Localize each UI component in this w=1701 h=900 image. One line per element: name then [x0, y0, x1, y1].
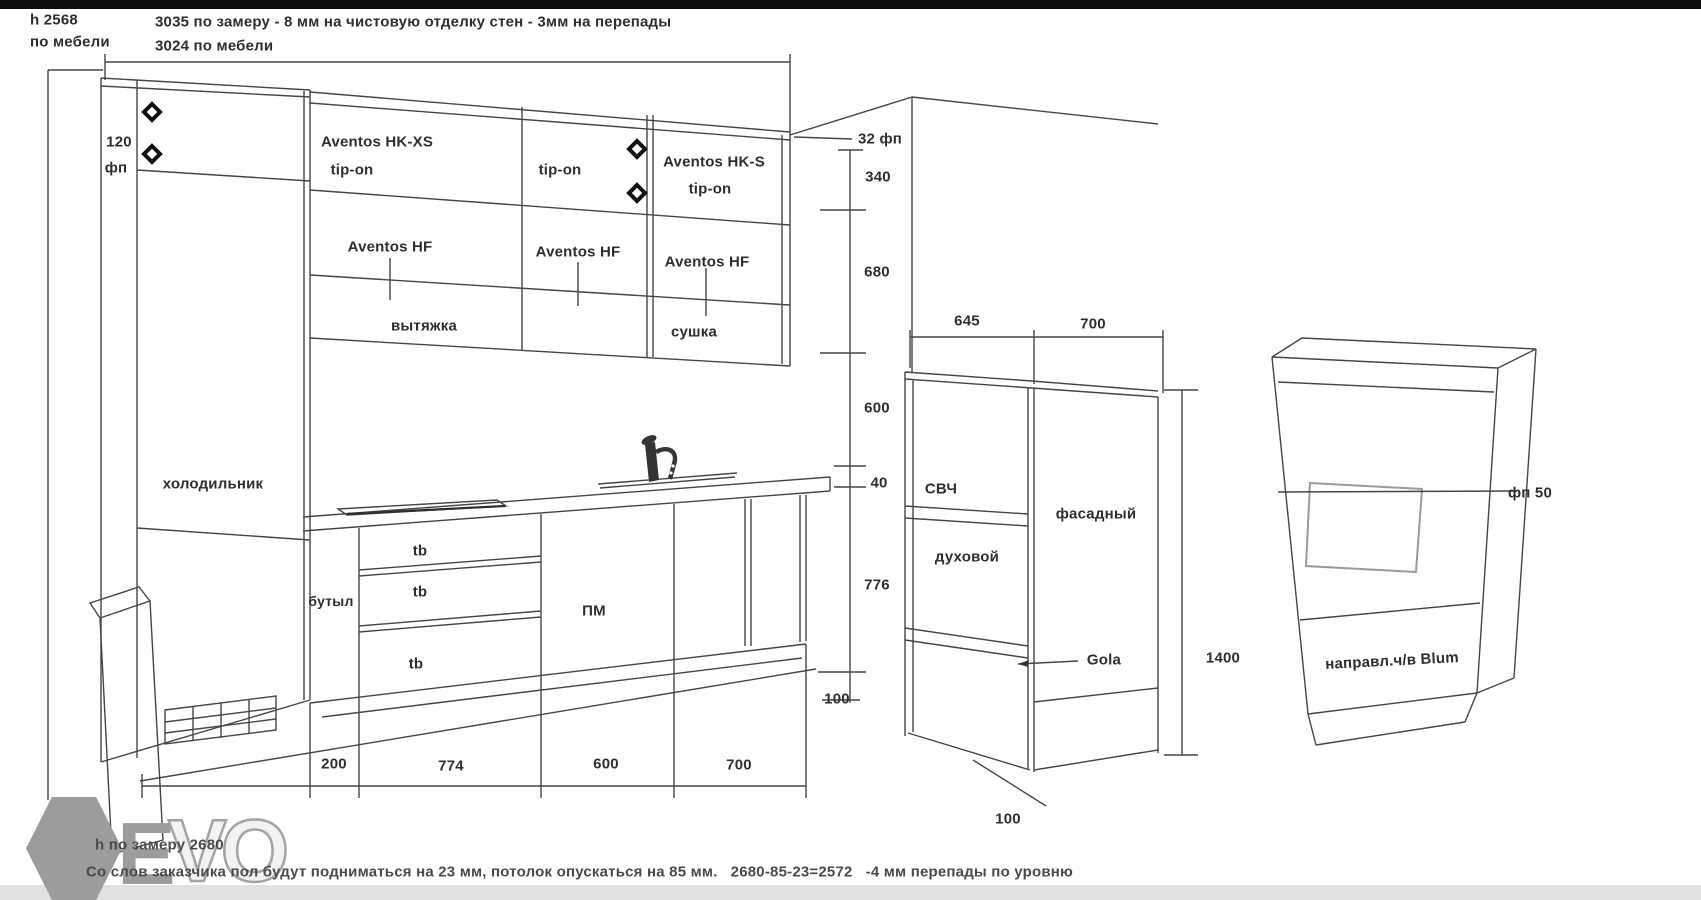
side-filler-label: фп 50	[1508, 485, 1552, 502]
fridge-column-outline	[101, 78, 310, 762]
dim-top-filler: 32 фп	[858, 131, 902, 148]
push-latch-diamond-icon	[629, 141, 645, 201]
top-filler-leader-line	[794, 137, 852, 139]
top-width-dimension-lines	[105, 54, 790, 132]
plinth-leader-line	[973, 760, 1046, 806]
tall-cabinet-outline	[905, 372, 1158, 806]
upper-sec1-tipon-label: tip-on	[331, 162, 374, 179]
dishwasher-label: ПМ	[582, 603, 606, 620]
tall-cabinet-top-dimension-lines	[910, 330, 1163, 393]
tall-cabinet-front-height-dimension	[1164, 390, 1198, 755]
base-cabinets-outline	[140, 495, 816, 781]
vent-grille-icon	[165, 696, 276, 744]
measure-note-2: 3024 по мебели	[155, 38, 273, 55]
kitchen-drawing-page: h 2568 по мебели 3035 по замеру - 8 мм н…	[0, 0, 1701, 900]
hood-label: вытяжка	[391, 318, 457, 335]
tall-depth-645: 645	[954, 313, 980, 330]
elevation-line-drawing	[0, 0, 1701, 900]
dim-toe-kick-100: 100	[824, 691, 850, 708]
push-latch-diamond-icon	[144, 104, 160, 162]
evo-logo-letter-e: E	[117, 815, 176, 893]
dim-600-bottom: 600	[593, 756, 619, 773]
appliance-niche-outline	[1306, 483, 1422, 572]
front-panel-label: фасадный	[1056, 506, 1137, 523]
side-cabinet-outline	[1272, 338, 1536, 745]
microwave-label: СВЧ	[925, 481, 957, 498]
height-note-value: h 2568	[30, 12, 78, 29]
tall-front-height-1400: 1400	[1206, 650, 1240, 667]
footer-measured-height: h по замеру 2680	[95, 837, 224, 854]
measure-note-1: 3035 по замеру - 8 мм на чистовую отделк…	[155, 14, 671, 31]
filler-code-label: фп	[105, 160, 128, 177]
hf1-hardware-label: Aventos HF	[348, 239, 433, 256]
footer-note: Со слов заказчика пол будут подниматься …	[86, 864, 1073, 881]
tall-width-700: 700	[1080, 316, 1106, 333]
right-dimension-lines	[818, 150, 866, 703]
drawer1-label: tb	[413, 543, 428, 560]
fridge-label: холодильник	[163, 476, 264, 493]
hf3-hardware-label: Aventos HF	[665, 254, 750, 271]
upper-sec3-hardware-label: Aventos HK-S	[663, 154, 765, 171]
dim-680: 680	[864, 264, 890, 281]
dryer-label: сушка	[671, 324, 717, 341]
oven-label: духовой	[935, 549, 999, 566]
left-height-dimension-lines	[48, 70, 103, 800]
hf2-hardware-label: Aventos HF	[536, 244, 621, 261]
dim-40: 40	[870, 475, 887, 492]
drawer2-label: tb	[413, 584, 428, 601]
tall-plinth-100: 100	[995, 811, 1021, 828]
upper-sec2-tipon-label: tip-on	[539, 162, 582, 179]
dim-776: 776	[864, 577, 890, 594]
dim-340: 340	[865, 169, 891, 186]
filler-leader-line	[1278, 491, 1517, 492]
height-note-sub: по мебели	[30, 34, 110, 51]
dim-700-bottom: 700	[726, 757, 752, 774]
faucet-icon	[640, 433, 675, 482]
upper-sec3-tipon-label: tip-on	[689, 181, 732, 198]
dim-200: 200	[321, 756, 347, 773]
gola-label: Gola	[1087, 652, 1121, 669]
filler-width-label: 120	[106, 134, 132, 151]
bottle-pullout-label: бутыл	[308, 593, 353, 609]
drawer3-label: tb	[409, 656, 424, 673]
dim-600: 600	[864, 400, 890, 417]
upper-sec1-hardware-label: Aventos HK-XS	[321, 134, 433, 151]
dim-774: 774	[438, 758, 464, 775]
